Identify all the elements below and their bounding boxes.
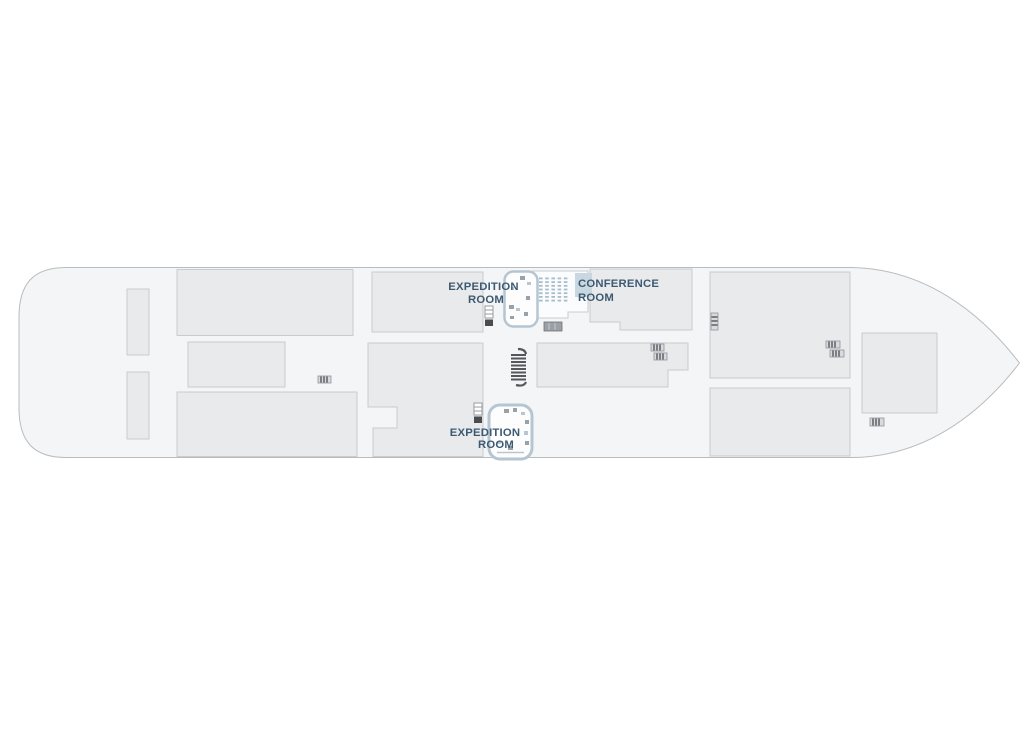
conference-seat [551,300,555,302]
conference-seat [558,289,562,291]
stairs-icon-mid-2 [654,353,667,360]
svg-text:CONFERENCE: CONFERENCE [578,278,659,290]
room-stern-lower [127,372,149,439]
stairs-icon-forward-2 [830,350,844,357]
conference-seat [558,296,562,298]
room-bow [862,333,937,413]
conference-seat [545,289,549,291]
svg-text:ROOM: ROOM [478,439,514,451]
conference-seat [539,296,543,298]
stairs-icon-forward-1 [826,341,840,348]
svg-text:ROOM: ROOM [468,294,504,306]
conference-seat [564,285,568,287]
conference-seat [539,281,543,283]
conference-seat [545,300,549,302]
conference-seat [564,292,568,294]
stairs-icon-forward-vertical [711,313,718,330]
conference-seat [564,278,568,280]
svg-text:EXPEDITION: EXPEDITION [450,427,520,439]
stairs-icon-mid-1 [651,344,664,351]
conference-seat [539,292,543,294]
stairs-icon-bow [870,418,884,426]
conference-seat [551,296,555,298]
conference-seat [551,289,555,291]
conference-seat [558,278,562,280]
conference-seat [558,300,562,302]
conference-seat [564,289,568,291]
elevator-icon-top [485,306,493,326]
room-aft-middle [188,342,285,387]
conference-seat [558,292,562,294]
conference-seat [558,281,562,283]
table-icon [544,322,562,331]
room-stern-upper [127,289,149,355]
deck-plan-canvas: EXPEDITION ROOM CONFERENCE ROOM EXPEDITI… [0,0,1024,731]
conference-seat [545,296,549,298]
conference-seat [564,296,568,298]
room-forward-top [710,272,850,378]
conference-seat [539,300,543,302]
conference-seat [551,278,555,280]
conference-seat [539,285,543,287]
svg-text:ROOM: ROOM [578,292,614,304]
conference-seat [551,281,555,283]
conference-seat [539,278,543,280]
conference-seat [545,281,549,283]
room-mid-bottom [368,343,483,457]
elevator-icon-bottom [474,403,482,423]
expedition-room-top-outline [505,272,538,327]
conference-seat [539,289,543,291]
stairs-icon-aft [318,376,331,383]
conference-seat [551,292,555,294]
conference-seat [545,292,549,294]
conference-seat [558,285,562,287]
svg-text:EXPEDITION: EXPEDITION [448,281,518,293]
conference-seat [564,281,568,283]
conference-seat [545,285,549,287]
room-aft-top [177,270,353,336]
room-forward-bottom [710,388,850,456]
room-aft-bottom [177,392,357,457]
deck-plan: EXPEDITION ROOM CONFERENCE ROOM EXPEDITI… [0,0,1024,731]
conference-seat [564,300,568,302]
conference-seat [545,278,549,280]
room-mid-long [537,343,688,387]
conference-seat [551,285,555,287]
